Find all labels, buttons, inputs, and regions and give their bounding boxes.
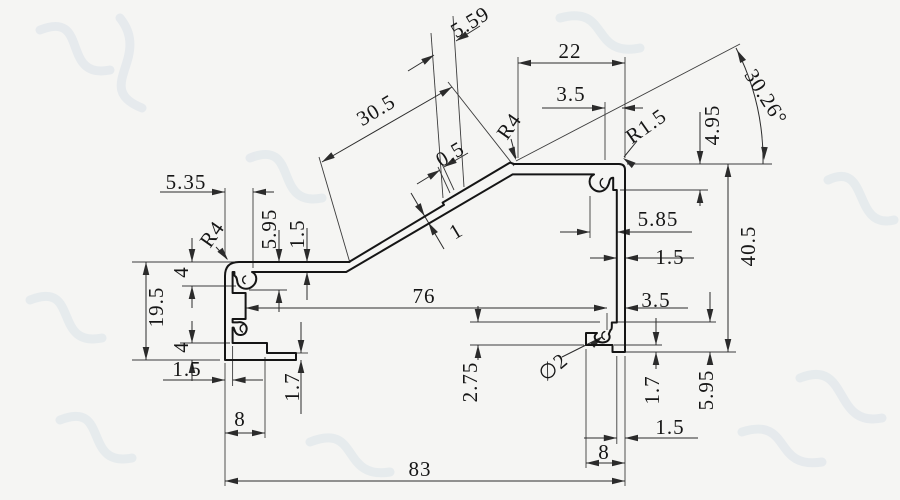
watermark-glyph [800,374,882,419]
dimension-arrow [276,249,283,262]
dimension-arrow [253,189,266,196]
dimension-arrow [252,430,265,437]
dim-label-R1.5: R1.5 [621,103,671,148]
dimension-arrow [653,332,660,345]
watermark-glyph [120,18,142,108]
dim-label-5.85: 5.85 [638,207,679,231]
dim-label-R4: R4 [195,216,230,251]
dimension-arrow [622,105,635,112]
watermark-glyph [40,26,110,71]
dim-label-5.59: 5.59 [446,1,493,43]
dim-label-4: 4 [169,266,193,278]
dim-label-1.7: 1.7 [280,372,304,401]
dimension-arrow [189,249,196,262]
dimension-arrow [707,309,714,322]
dim-label-8: 8 [234,407,246,431]
dimension-arrow [612,60,625,67]
dimension-arrow [725,164,732,177]
dimension-arrow [427,167,442,179]
dimension-arrow [225,478,238,485]
dimension-arrow [604,255,617,262]
dim-label-5.95: 5.95 [694,370,718,411]
dimension-arrow [612,460,625,467]
dimension-arrow [697,151,704,164]
dimension-arrow [518,60,531,67]
profile-outline-path [225,163,625,360]
dim-label-30.26: 30.26° [739,64,792,129]
dimension-arrow [625,305,638,312]
dim-label-3.5: 3.5 [641,288,670,312]
dimension-arrow [143,262,150,275]
dimension-arrow [734,48,746,63]
profile-hook-curl [600,179,604,188]
dimension-arrow [298,340,305,353]
dimension-arrow [304,249,311,262]
dimension-arrow [508,147,519,161]
dim-label-1.5: 1.5 [172,357,201,381]
dim-label-76: 76 [413,284,436,308]
profile-hook-curl [243,276,246,284]
drawing-canvas: 5.35R45.951.5419.541.51.78768330.55.590.… [0,0,900,500]
dimension-arrow [475,309,482,322]
profile-hook-curl [240,325,243,332]
dimension-arrow [653,352,660,365]
dimension-arrow [233,377,246,384]
dim-label-3.5: 3.5 [556,82,585,106]
dim-label-1.5: 1.5 [655,415,684,439]
dim-label-83: 83 [409,457,432,481]
dim-label-22: 22 [559,39,582,63]
dimension-arrow [276,290,283,303]
dimension-arrow [212,377,225,384]
watermark-glyph [60,416,132,459]
dimension-arrow [617,229,630,236]
dim-label-2: ∅2 [533,348,572,386]
dim-label-1: 1 [445,218,467,244]
watermark-glyph [30,296,102,339]
dim-label-19.5: 19.5 [144,287,168,328]
dimension-arrow [189,286,196,299]
dimension-arrow [143,347,150,360]
dimension-arrow [592,105,605,112]
dimension-arrow [612,478,625,485]
dimension-arrow [625,255,638,262]
dimension-arrow [246,305,259,312]
dimension-arrow [625,435,638,442]
dimension-arrow [707,352,714,365]
dimension-arrow [217,248,230,262]
dim-label-5.35: 5.35 [166,170,207,194]
profile-technical-drawing: 5.35R45.951.5419.541.51.78768330.55.590.… [0,0,900,500]
dim-label-1.5: 1.5 [655,245,684,269]
dim-label-4: 4 [169,341,193,353]
watermark-glyph [742,429,822,463]
dim-label-4.95: 4.95 [700,105,724,146]
extension-line [319,157,350,263]
dimension-arrow [304,272,311,285]
watermark-glyph [310,438,390,473]
dimension-arrow [761,147,768,160]
dimension-arrow [594,305,607,312]
dimension-arrow [189,330,196,343]
dim-label-5.95: 5.95 [257,209,281,250]
dim-label-8: 8 [598,440,610,464]
dimension-arrow [577,229,590,236]
dim-label-40.5: 40.5 [736,226,760,267]
dim-label-2.75: 2.75 [458,362,482,403]
profile-hook-curl [602,332,605,340]
dimension-arrow [298,360,305,373]
profile-outline [225,163,625,360]
dimension-arrow [212,189,225,196]
dim-label-1.5: 1.5 [285,219,309,248]
dimension-labels: 5.35R45.951.5419.541.51.78768330.55.590.… [144,1,793,481]
dim-label-1.7: 1.7 [640,375,664,404]
dimension-arrow [725,339,732,352]
dimension-arrow [586,460,599,467]
dim-label-30.5: 30.5 [352,89,399,131]
dimension-arrow [320,152,335,164]
dimension-arrow [697,190,704,203]
dimension-arrow [475,345,482,358]
dim-label-R4: R4 [492,108,527,143]
watermark-glyph [828,176,894,221]
dimension-arrow [426,221,438,236]
